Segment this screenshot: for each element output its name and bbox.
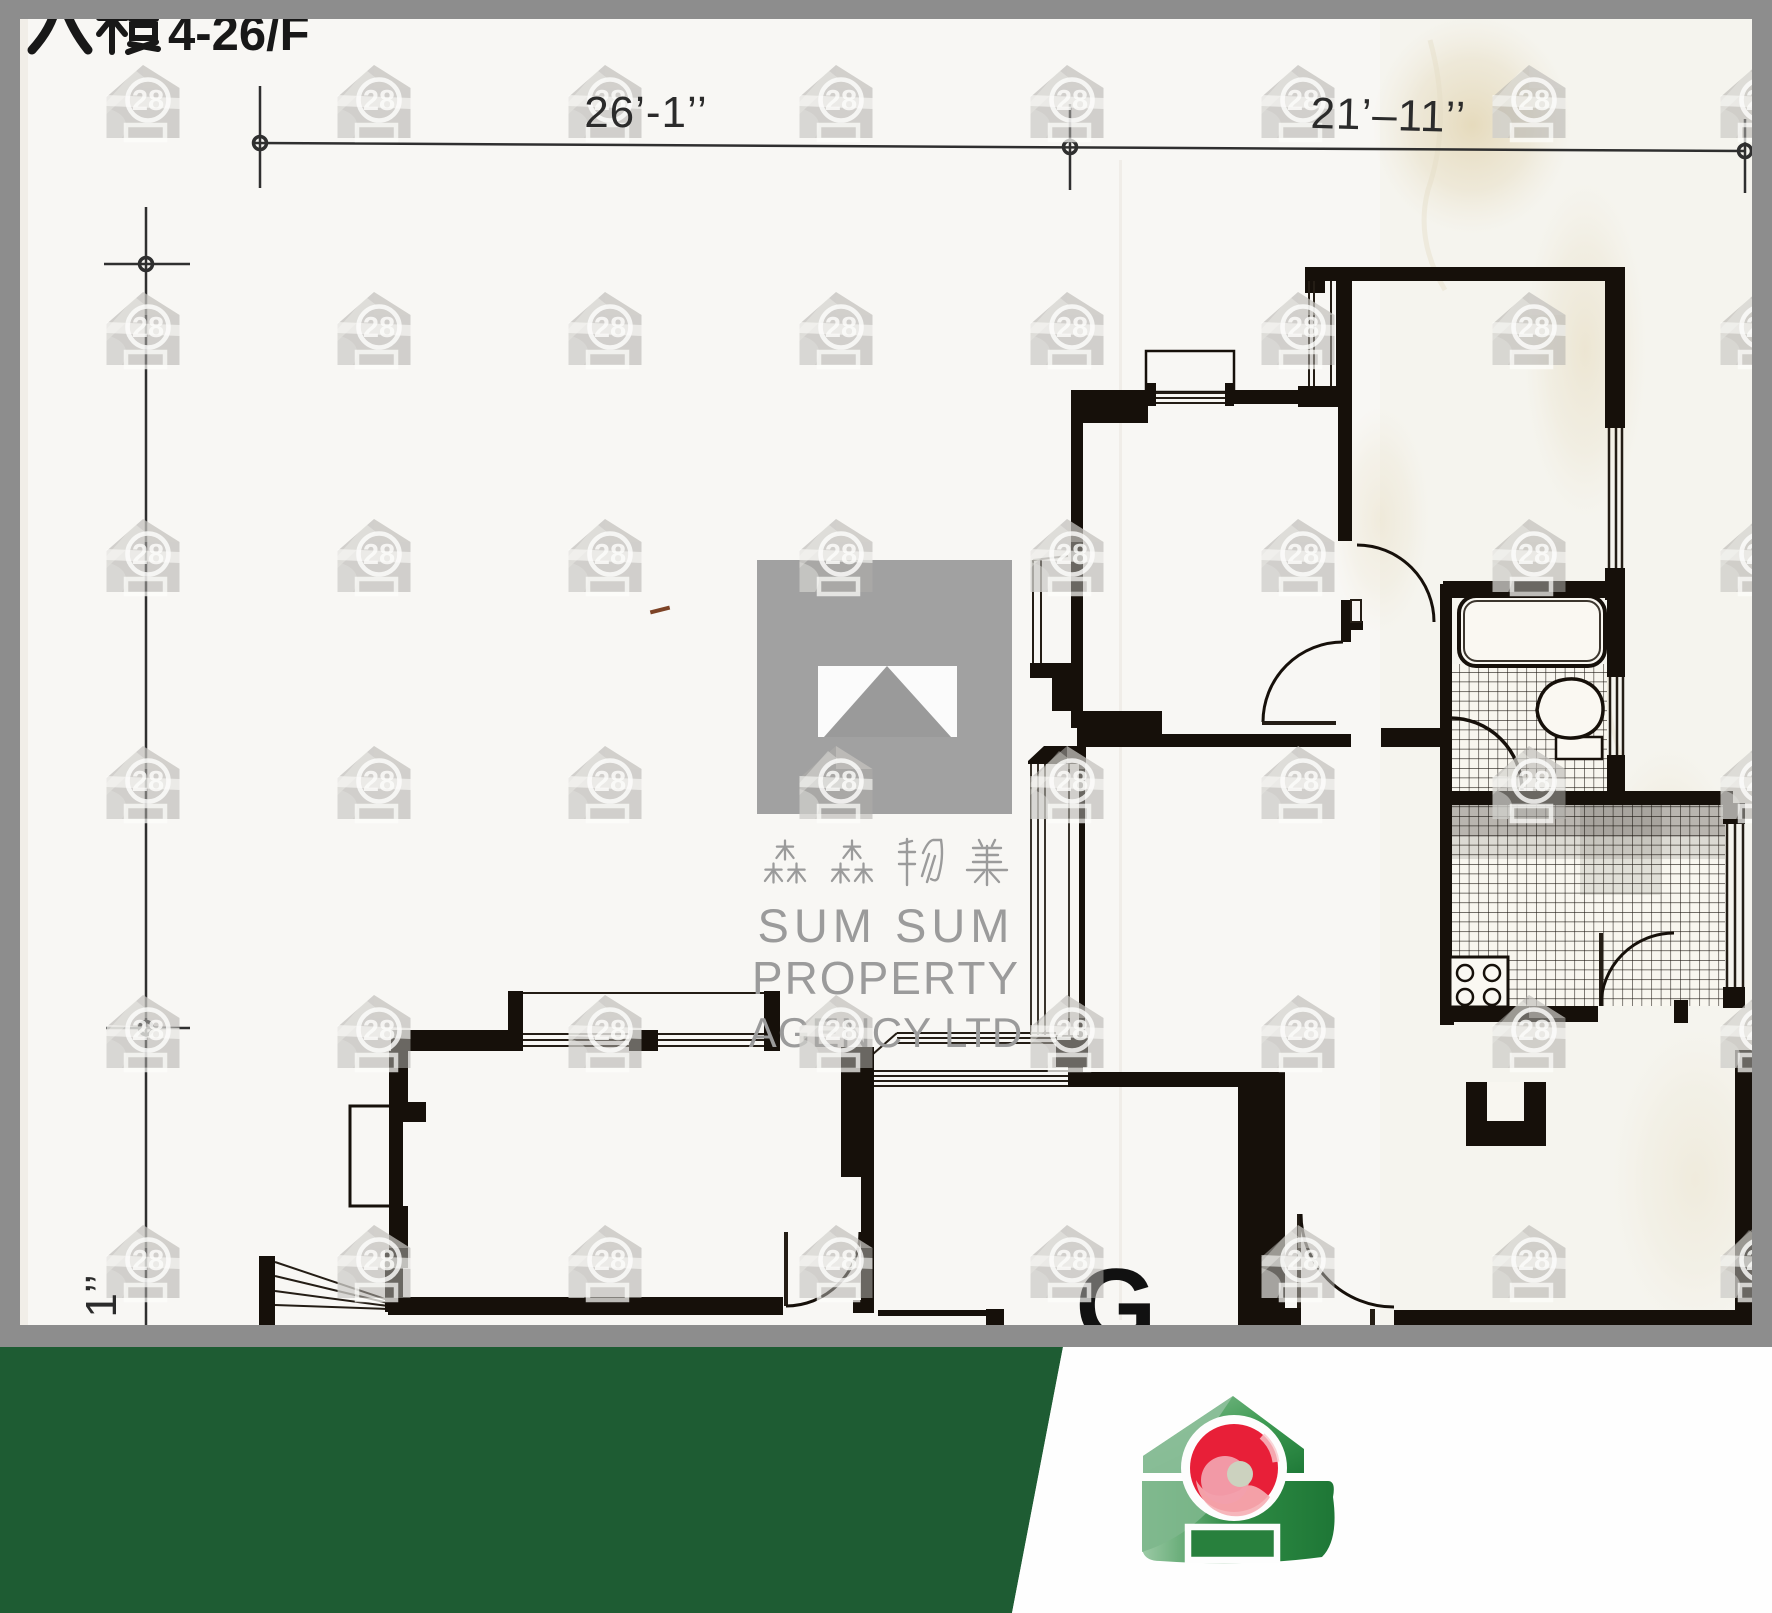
svg-text:AGENCY LTD: AGENCY LTD (749, 1009, 1024, 1056)
svg-text:PROPERTY: PROPERTY (752, 952, 1020, 1004)
svg-text:26’-1’’: 26’-1’’ (584, 88, 708, 137)
svg-text:1’’: 1’’ (77, 1274, 126, 1317)
svg-text:21’–11’’: 21’–11’’ (1310, 89, 1467, 142)
svg-text:SUM SUM: SUM SUM (758, 899, 1015, 952)
